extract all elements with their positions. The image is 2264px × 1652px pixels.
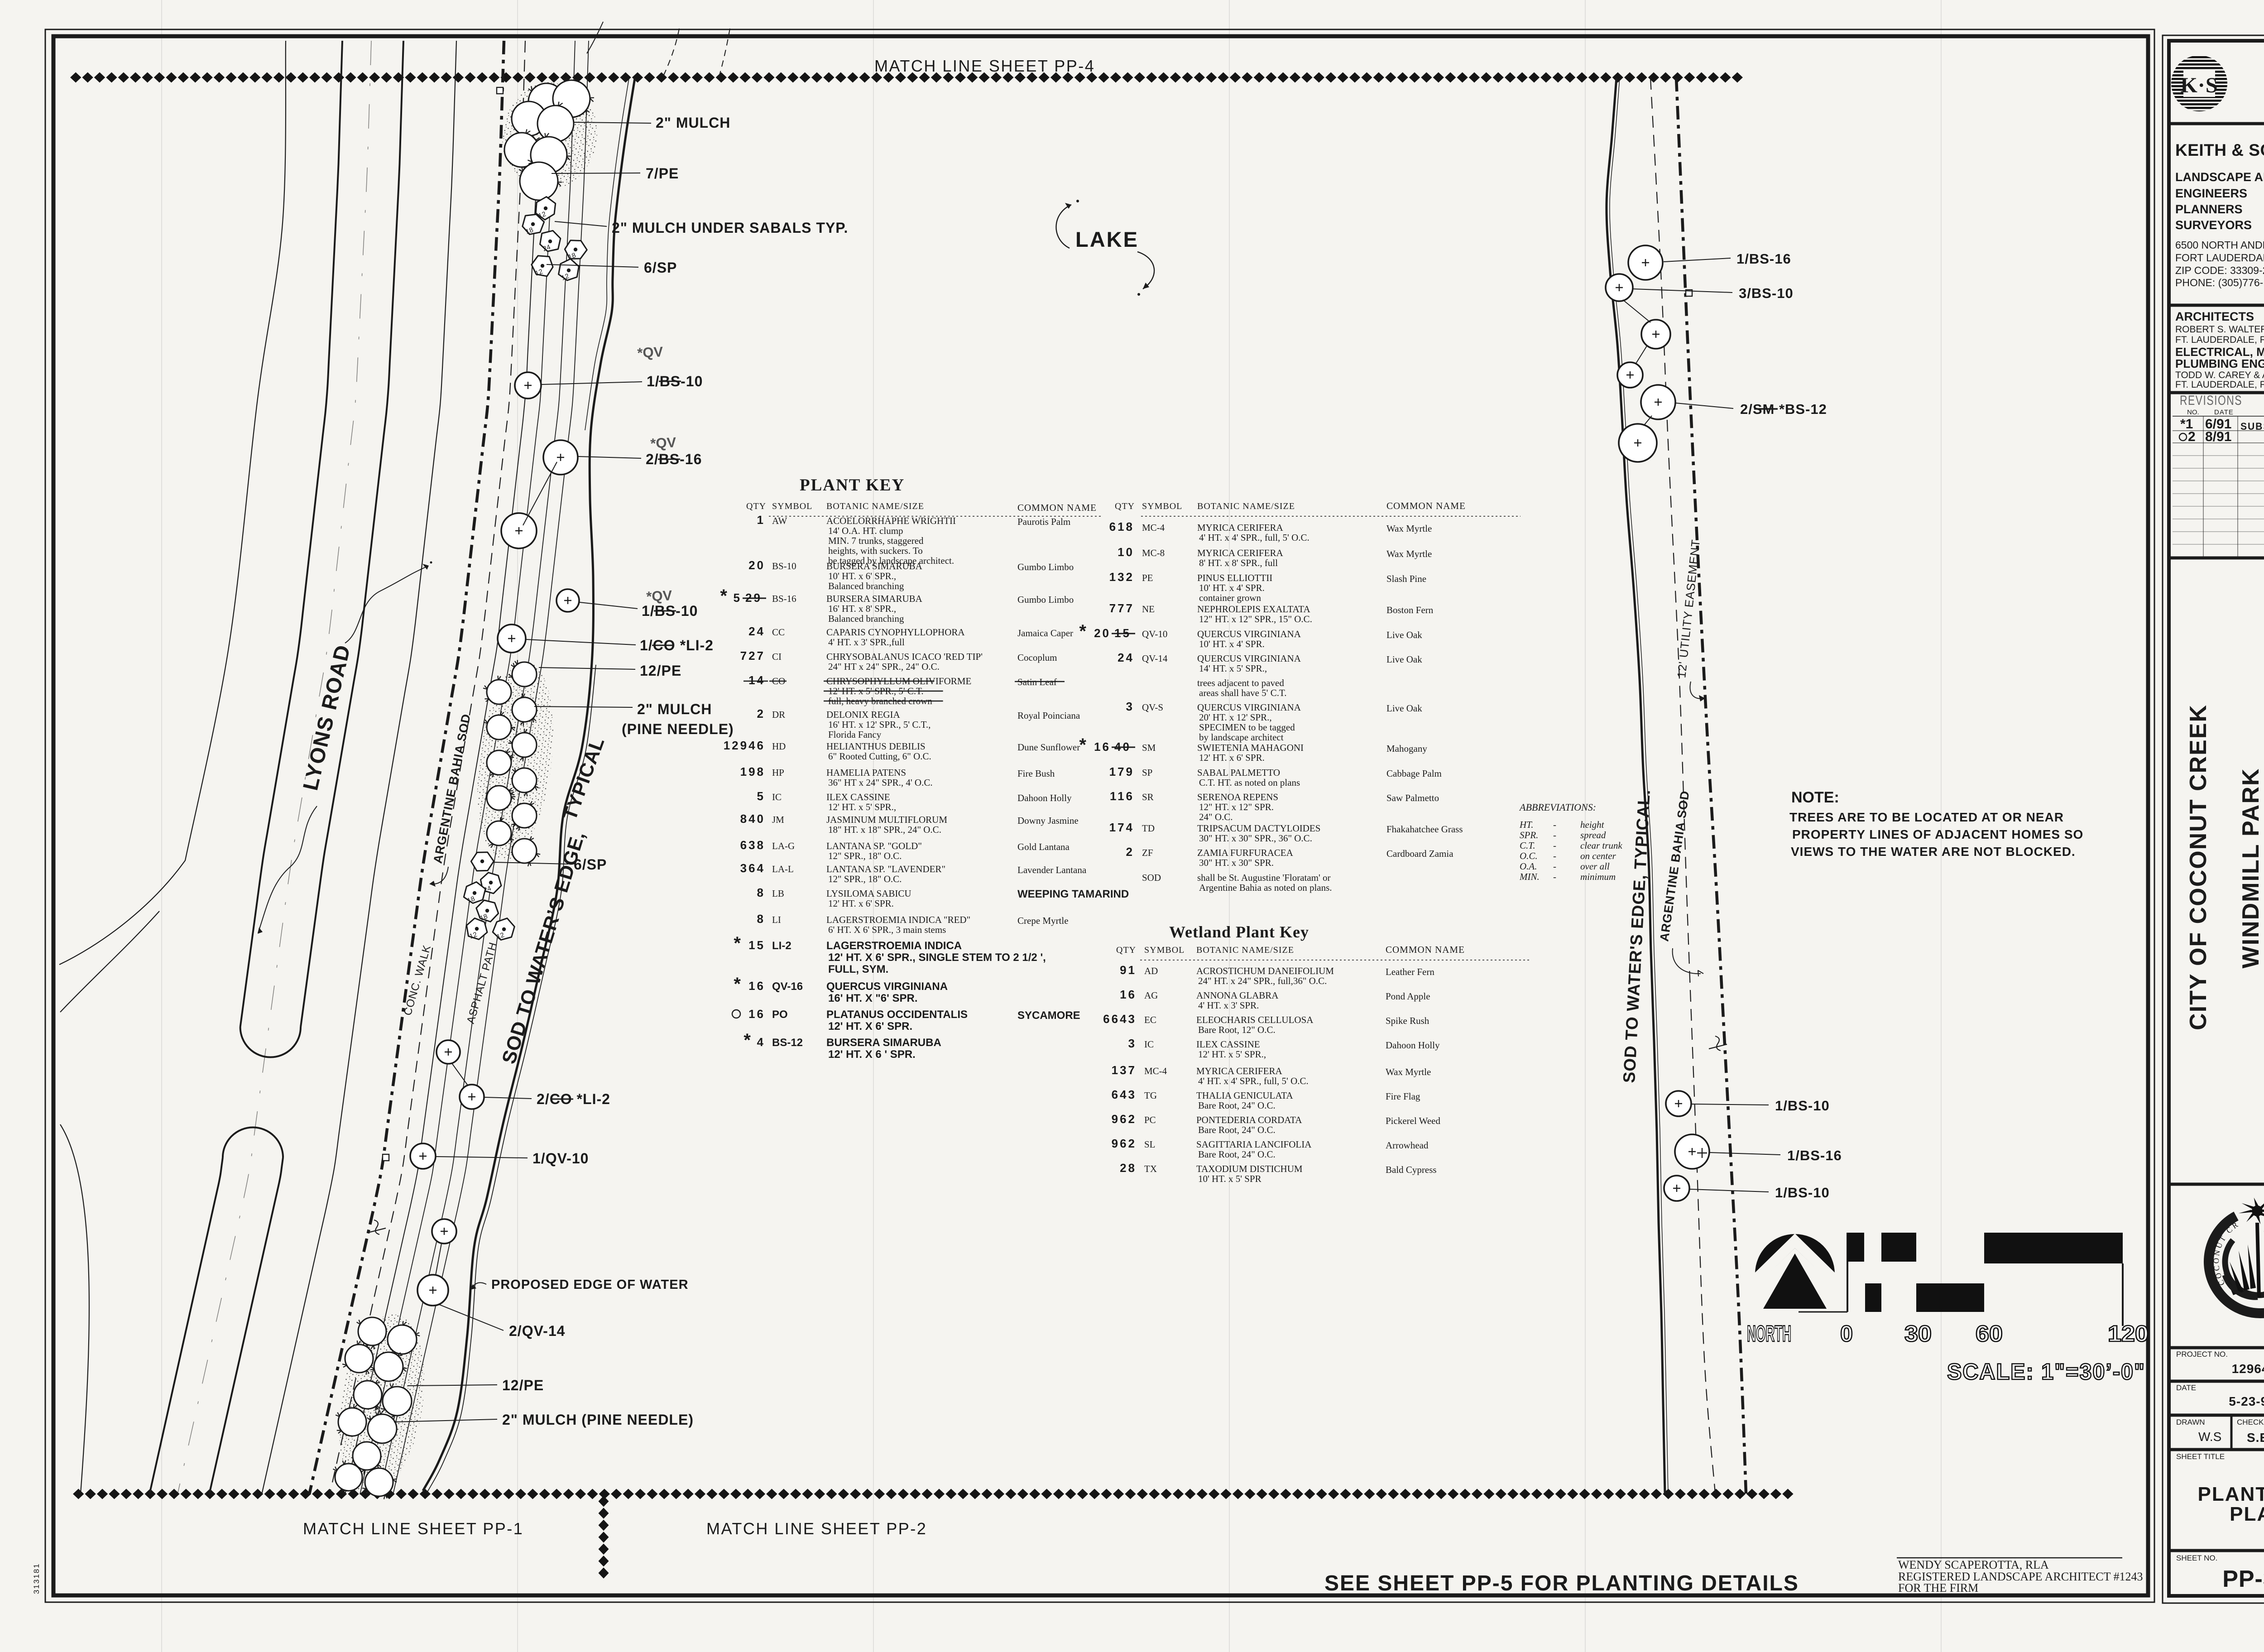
svg-text:*: * — [1079, 735, 1086, 755]
svg-text:8: 8 — [757, 912, 765, 926]
svg-text:SOD: SOD — [1142, 872, 1161, 883]
svg-text:VIEWS TO THE WATER ARE NOT BLO: VIEWS TO THE WATER ARE NOT BLOCKED. — [1791, 845, 2076, 859]
svg-text:BOTANIC NAME/SIZE: BOTANIC NAME/SIZE — [826, 501, 924, 511]
svg-text:4' HT. x 4' SPR., full, 5' O.C: 4' HT. x 4' SPR., full, 5' O.C. — [1198, 1076, 1309, 1086]
svg-text:2" MULCH: 2" MULCH — [656, 115, 730, 131]
svg-text:10' HT. x 4' SPR.: 10' HT. x 4' SPR. — [1199, 639, 1265, 649]
svg-text:174: 174 — [1109, 821, 1134, 834]
svg-text:BOTANIC NAME/SIZE: BOTANIC NAME/SIZE — [1196, 945, 1294, 955]
svg-text:24" HT. x 24" SPR., full,36" O: 24" HT. x 24" SPR., full,36" O.C. — [1198, 975, 1327, 986]
svg-text:LAGERSTROEMIA INDICA "RED": LAGERSTROEMIA INDICA "RED" — [826, 914, 970, 925]
svg-text:2" MULCH: 2" MULCH — [637, 701, 712, 717]
svg-text:WEEPING TAMARIND: WEEPING TAMARIND — [1017, 888, 1129, 900]
svg-text:Jamaica Caper: Jamaica Caper — [1017, 628, 1073, 639]
svg-text:by landscape architect: by landscape architect — [1199, 732, 1284, 743]
svg-text:CAPARIS CYNOPHYLLOPHORA: CAPARIS CYNOPHYLLOPHORA — [826, 627, 965, 638]
svg-text:3/BS-10: 3/BS-10 — [1739, 285, 1794, 301]
svg-text:BURSERA SIMARUBA: BURSERA SIMARUBA — [826, 593, 923, 604]
svg-text:24" O.C.: 24" O.C. — [1199, 812, 1233, 822]
svg-text:LA-L: LA-L — [772, 864, 794, 874]
svg-text:SEE SHEET PP-5 FOR PLANTING DE: SEE SHEET PP-5 FOR PLANTING DETAILS — [1324, 1571, 1799, 1595]
svg-text:Lavender Lantana: Lavender Lantana — [1017, 864, 1087, 875]
svg-text:PROPOSED EDGE OF WATER: PROPOSED EDGE OF WATER — [491, 1277, 689, 1292]
svg-text:FULL, SYM.: FULL, SYM. — [828, 963, 888, 975]
svg-text:20: 20 — [1094, 626, 1111, 640]
svg-text:3: 3 — [1126, 700, 1134, 713]
svg-text:DR: DR — [772, 709, 785, 720]
svg-text:16: 16 — [748, 979, 765, 993]
svg-text:KEITH & SCHNARS, P.A.: KEITH & SCHNARS, P.A. — [2175, 141, 2264, 159]
svg-text:313181: 313181 — [32, 1563, 41, 1594]
svg-text:on center: on center — [1580, 850, 1616, 861]
svg-text:91: 91 — [1120, 963, 1137, 977]
svg-text:MIN.: MIN. — [1519, 871, 1540, 882]
svg-text:DELONIX REGIA: DELONIX REGIA — [826, 709, 901, 720]
svg-text:ARGENTINE BAHIA SOD: ARGENTINE BAHIA SOD — [1657, 790, 1692, 942]
svg-text:SL: SL — [1144, 1139, 1156, 1150]
svg-text:ILEX CASSINE: ILEX CASSINE — [826, 792, 890, 802]
svg-text:Wetland Plant Key: Wetland Plant Key — [1169, 923, 1309, 941]
svg-text:MC-4: MC-4 — [1144, 1066, 1167, 1076]
svg-text:1/BS-10: 1/BS-10 — [1775, 1185, 1830, 1201]
svg-text:MATCH LINE SHEET PP-4: MATCH LINE SHEET PP-4 — [874, 57, 1095, 75]
svg-text:QUERCUS VIRGINIANA: QUERCUS VIRGINIANA — [1197, 653, 1301, 664]
svg-text:HT.: HT. — [1519, 819, 1534, 830]
svg-text:LANTANA SP. "LAVENDER": LANTANA SP. "LAVENDER" — [826, 864, 945, 874]
svg-text:ROBERT S. WALTERS, P.A.: ROBERT S. WALTERS, P.A. — [2175, 324, 2264, 335]
svg-text:PLAN: PLAN — [2230, 1503, 2264, 1525]
svg-text:2/SM *BS-12: 2/SM *BS-12 — [1740, 401, 1827, 417]
svg-text:HELIANTHUS DEBILIS: HELIANTHUS DEBILIS — [826, 741, 926, 752]
svg-text:LANDSCAPE ARCHITECTS: LANDSCAPE ARCHITECTS — [2175, 170, 2264, 184]
svg-text:TYPICAL: TYPICAL — [559, 735, 609, 823]
svg-text:Dune Sunflower: Dune Sunflower — [1017, 742, 1080, 753]
svg-text:FOR THE FIRM: FOR THE FIRM — [1898, 1581, 1978, 1594]
svg-text:Balanced branching: Balanced branching — [828, 581, 904, 591]
svg-text:12964: 12964 — [2232, 1362, 2264, 1376]
svg-text:LYSILOMA SABICU: LYSILOMA SABICU — [826, 888, 911, 899]
svg-text:COMMON NAME: COMMON NAME — [1017, 502, 1097, 513]
svg-text:PLATANUS OCCIDENTALIS: PLATANUS OCCIDENTALIS — [826, 1008, 968, 1021]
svg-text:SUBSTITUTIONS: SUBSTITUTIONS — [2240, 421, 2264, 432]
svg-text:120: 120 — [2108, 1321, 2149, 1346]
svg-text:20' HT. x 12' SPR.,: 20' HT. x 12' SPR., — [1199, 712, 1272, 723]
svg-text:1/CO *LI-2: 1/CO *LI-2 — [640, 637, 714, 653]
svg-text:PC: PC — [1144, 1114, 1156, 1125]
svg-text:14' O.A. HT. clump: 14' O.A. HT. clump — [828, 525, 903, 536]
svg-text:NO.: NO. — [2187, 408, 2199, 416]
svg-text:5-23-90: 5-23-90 — [2229, 1394, 2264, 1408]
svg-text:6643: 6643 — [1103, 1012, 1137, 1026]
svg-text:QUERCUS VIRGINIANA: QUERCUS VIRGINIANA — [826, 980, 948, 993]
svg-text:20: 20 — [748, 558, 765, 572]
svg-text:30" HT. x 30" SPR., 36" O.C.: 30" HT. x 30" SPR., 36" O.C. — [1199, 833, 1312, 844]
svg-text:ACROSTICHUM DANEIFOLIUM: ACROSTICHUM DANEIFOLIUM — [1196, 965, 1334, 976]
svg-text:SCALE: 1"=30’-0": SCALE: 1"=30’-0" — [1947, 1359, 2145, 1384]
svg-text:ZIP CODE: 33309-2132: ZIP CODE: 33309-2132 — [2175, 264, 2264, 276]
svg-text:1/BS-16: 1/BS-16 — [1787, 1148, 1842, 1163]
svg-text:MATCH LINE SHEET PP-2: MATCH LINE SHEET PP-2 — [706, 1519, 927, 1538]
svg-text:Fire Flag: Fire Flag — [1386, 1091, 1420, 1102]
svg-text:10' HT. x 6' SPR.,: 10' HT. x 6' SPR., — [828, 571, 896, 581]
svg-text:Paurotis Palm: Paurotis Palm — [1017, 516, 1070, 527]
svg-text:16: 16 — [1094, 740, 1111, 754]
svg-text:IC: IC — [1144, 1039, 1154, 1050]
svg-text:16: 16 — [1120, 988, 1137, 1001]
svg-text:container grown: container grown — [1199, 592, 1262, 603]
svg-text:TAXODIUM DISTICHUM: TAXODIUM DISTICHUM — [1196, 1163, 1303, 1174]
svg-text:SHEET NO.: SHEET NO. — [2176, 1554, 2217, 1562]
svg-text:QUERCUS VIRGINIANA: QUERCUS VIRGINIANA — [1197, 629, 1301, 639]
svg-text:28: 28 — [1120, 1161, 1137, 1175]
svg-text:198: 198 — [740, 765, 765, 778]
svg-text:ABBREVIATIONS:: ABBREVIATIONS: — [1519, 802, 1596, 813]
svg-text:ANNONA GLABRA: ANNONA GLABRA — [1196, 990, 1279, 1001]
svg-text:PLANNERS: PLANNERS — [2175, 202, 2243, 216]
svg-text:LANTANA SP. "GOLD": LANTANA SP. "GOLD" — [826, 840, 922, 851]
svg-text:shall be St. Augustine 'Florat: shall be St. Augustine 'Floratam' or — [1197, 872, 1331, 883]
svg-text:Boston Fern: Boston Fern — [1386, 605, 1434, 615]
svg-text:MYRICA CERIFERA: MYRICA CERIFERA — [1196, 1066, 1282, 1076]
svg-text:SERENOA REPENS: SERENOA REPENS — [1197, 792, 1278, 802]
svg-text:638: 638 — [740, 838, 765, 852]
svg-text:PLANTING: PLANTING — [2198, 1483, 2264, 1505]
svg-text:Florida Fancy: Florida Fancy — [828, 729, 882, 740]
svg-text:S.E.T.: S.E.T. — [2247, 1431, 2264, 1445]
svg-text:8: 8 — [757, 886, 765, 899]
svg-text:Arrowhead: Arrowhead — [1386, 1140, 1429, 1151]
svg-text:Royal Poinciana: Royal Poinciana — [1017, 710, 1080, 721]
svg-text:BOTANIC NAME/SIZE: BOTANIC NAME/SIZE — [1197, 501, 1295, 511]
svg-text:clear trunk: clear trunk — [1580, 840, 1622, 851]
svg-text:Dahoon Holly: Dahoon Holly — [1386, 1040, 1440, 1051]
svg-text:-: - — [1553, 871, 1556, 882]
svg-text:16' HT. X "6' SPR.: 16' HT. X "6' SPR. — [828, 992, 918, 1004]
svg-text:12" SPR., 18" O.C.: 12" SPR., 18" O.C. — [828, 850, 902, 861]
svg-text:Cabbage Palm: Cabbage Palm — [1386, 768, 1442, 779]
svg-text:179: 179 — [1109, 765, 1134, 778]
svg-text:TG: TG — [1144, 1090, 1157, 1101]
svg-text:12" HT. x 12" SPR., 15" O.C.: 12" HT. x 12" SPR., 15" O.C. — [1199, 614, 1312, 624]
svg-text:*QV: *QV — [637, 344, 664, 361]
svg-text:PINUS ELLIOTTII: PINUS ELLIOTTII — [1197, 572, 1272, 583]
svg-text:Bare Root, 24" O.C.: Bare Root, 24" O.C. — [1198, 1149, 1276, 1160]
svg-text:364: 364 — [740, 861, 765, 875]
svg-text:SYMBOL: SYMBOL — [1144, 945, 1185, 955]
svg-text:*QV: *QV — [646, 587, 673, 605]
svg-text:Fire Bush: Fire Bush — [1017, 768, 1055, 779]
svg-text:HD: HD — [772, 741, 786, 752]
svg-text:Bare Root, 12" O.C.: Bare Root, 12" O.C. — [1198, 1024, 1276, 1035]
svg-text:Fhakahatchee Grass: Fhakahatchee Grass — [1386, 824, 1463, 835]
svg-text:Leather Fern: Leather Fern — [1386, 966, 1434, 977]
svg-text:1/BS-16: 1/BS-16 — [1736, 251, 1791, 267]
svg-text:ELEOCHARIS CELLULOSA: ELEOCHARIS CELLULOSA — [1196, 1014, 1314, 1025]
svg-text:BS-12: BS-12 — [772, 1037, 803, 1049]
svg-text:Mahogany: Mahogany — [1386, 743, 1427, 754]
svg-text:PROPERTY LINES OF ADJACENT HOM: PROPERTY LINES OF ADJACENT HOMES SO — [1792, 827, 2083, 841]
svg-text:4' HT. x 4' SPR., full, 5' O.C: 4' HT. x 4' SPR., full, 5' O.C. — [1199, 532, 1309, 543]
svg-text:137: 137 — [1112, 1063, 1137, 1077]
svg-text:Wax Myrtle: Wax Myrtle — [1386, 523, 1432, 534]
svg-text:Saw Palmetto: Saw Palmetto — [1386, 792, 1439, 803]
svg-text:3: 3 — [1128, 1037, 1137, 1050]
svg-text:QV-10: QV-10 — [1142, 629, 1167, 639]
svg-text:SURVEYORS: SURVEYORS — [2175, 218, 2252, 232]
svg-text:Crepe Myrtle: Crepe Myrtle — [1017, 915, 1069, 926]
svg-text:QV-14: QV-14 — [1142, 653, 1168, 664]
svg-text:BURSERA SIMARUBA: BURSERA SIMARUBA — [826, 1037, 941, 1049]
svg-text:PE: PE — [1142, 572, 1153, 583]
svg-text:SR: SR — [1142, 792, 1154, 802]
svg-text:10' HT. x 4' SPR.: 10' HT. x 4' SPR. — [1199, 582, 1265, 593]
svg-text:ACOELORRHAPHE WRIGHTII: ACOELORRHAPHE WRIGHTII — [826, 515, 956, 526]
svg-text:over all: over all — [1580, 861, 1610, 872]
svg-text:8' HT. x 8' SPR., full: 8' HT. x 8' SPR., full — [1199, 557, 1278, 568]
svg-text:AW: AW — [772, 515, 787, 526]
svg-text:2: 2 — [1126, 845, 1134, 859]
svg-text:WINDMILL PARK: WINDMILL PARK — [2238, 768, 2264, 969]
svg-text:4' HT. x 3' SPR.: 4' HT. x 3' SPR. — [1198, 1000, 1259, 1011]
svg-text:FT. LAUDERDALE, FLORIDA: FT. LAUDERDALE, FLORIDA — [2175, 335, 2264, 345]
svg-text:Cardboard Zamia: Cardboard Zamia — [1386, 848, 1453, 859]
svg-text:6/SP: 6/SP — [574, 856, 607, 873]
svg-text:CI: CI — [772, 651, 782, 662]
svg-text:LAGERSTROEMIA INDICA: LAGERSTROEMIA INDICA — [826, 940, 962, 952]
svg-text:SPECIMEN to be tagged: SPECIMEN to be tagged — [1199, 722, 1295, 733]
svg-text:2" MULCH UNDER SABALS TYP.: 2" MULCH UNDER SABALS TYP. — [612, 220, 848, 236]
svg-text:Live Oak: Live Oak — [1386, 703, 1422, 714]
svg-text:TX: TX — [1144, 1163, 1157, 1174]
svg-text:areas shall have 5' C.T.: areas shall have 5' C.T. — [1199, 687, 1287, 698]
svg-text:2: 2 — [2188, 429, 2196, 444]
svg-text:heights, with suckers. To: heights, with suckers. To — [828, 545, 923, 556]
svg-text:C.T.: C.T. — [1520, 840, 1535, 851]
svg-text:5: 5 — [734, 591, 742, 605]
svg-text:60: 60 — [1976, 1321, 2003, 1346]
svg-text:HP: HP — [772, 767, 784, 778]
svg-text:PLANT KEY: PLANT KEY — [800, 476, 905, 495]
svg-text:TRIPSACUM DACTYLOIDES: TRIPSACUM DACTYLOIDES — [1197, 823, 1320, 834]
svg-text:ENGINEERS: ENGINEERS — [2175, 187, 2247, 200]
svg-text:LI-2: LI-2 — [772, 940, 791, 952]
svg-text:Bare Root, 24" O.C.: Bare Root, 24" O.C. — [1198, 1124, 1276, 1135]
svg-text:DATE: DATE — [2214, 408, 2234, 416]
svg-text:Cocoplum: Cocoplum — [1017, 652, 1057, 663]
svg-text:SAGITTARIA LANCIFOLIA: SAGITTARIA LANCIFOLIA — [1196, 1139, 1312, 1150]
svg-text:QTY: QTY — [1116, 945, 1136, 955]
svg-text:K·S: K·S — [2180, 73, 2218, 97]
svg-text:SYMBOL: SYMBOL — [772, 501, 812, 511]
svg-text:LA-G: LA-G — [772, 840, 795, 851]
svg-text:LAKE: LAKE — [1075, 227, 1139, 251]
svg-text:MATCH LINE SHEET PP-1: MATCH LINE SHEET PP-1 — [303, 1519, 523, 1538]
svg-text:SABAL PALMETTO: SABAL PALMETTO — [1197, 767, 1280, 778]
svg-text:12' HT. x 5' SPR.,: 12' HT. x 5' SPR., — [1198, 1049, 1266, 1060]
svg-text:O.C.: O.C. — [1520, 850, 1538, 861]
svg-text:Gumbo Limbo: Gumbo Limbo — [1017, 562, 1074, 572]
svg-text:BS-16: BS-16 — [772, 593, 796, 604]
svg-text:2: 2 — [757, 707, 765, 720]
svg-text:840: 840 — [740, 812, 765, 826]
svg-text:4' HT. x 3' SPR.,full: 4' HT. x 3' SPR.,full — [828, 637, 905, 648]
svg-text:12' HT. x 6' SPR.: 12' HT. x 6' SPR. — [828, 898, 894, 909]
svg-text:CC: CC — [772, 627, 785, 638]
svg-text:MYRICA CERIFERA: MYRICA CERIFERA — [1197, 547, 1283, 558]
svg-text:PLUMBING ENGINEER: PLUMBING ENGINEER — [2175, 357, 2264, 370]
svg-text:12' HT. X 6 ' SPR.: 12' HT. X 6 ' SPR. — [828, 1048, 916, 1061]
svg-text:12" SPR., 18" O.C.: 12" SPR., 18" O.C. — [828, 874, 902, 884]
svg-text:Bald Cypress: Bald Cypress — [1386, 1164, 1437, 1175]
svg-text:6500 NORTH ANDREWS AVENUE: 6500 NORTH ANDREWS AVENUE — [2175, 239, 2264, 251]
svg-text:36" HT x 24" SPR., 4' O.C.: 36" HT x 24" SPR., 4' O.C. — [828, 777, 933, 788]
svg-text:SHEET TITLE: SHEET TITLE — [2176, 1452, 2225, 1461]
svg-text:ARCHITECTS: ARCHITECTS — [2175, 310, 2254, 323]
svg-text:0: 0 — [1840, 1321, 1853, 1346]
svg-text:24: 24 — [748, 624, 765, 638]
svg-text:Pickerel Weed: Pickerel Weed — [1386, 1115, 1440, 1126]
svg-text:16' HT. x 8' SPR.,: 16' HT. x 8' SPR., — [828, 603, 896, 614]
svg-text:SWIETENIA MAHAGONI: SWIETENIA MAHAGONI — [1197, 742, 1304, 753]
svg-text:1/BS-10: 1/BS-10 — [1775, 1098, 1830, 1114]
svg-text:10' HT. x 5' SPR: 10' HT. x 5' SPR — [1198, 1173, 1262, 1184]
svg-text:W.S: W.S — [2198, 1430, 2221, 1444]
svg-text:FT. LAUDERDALE, FLORIDA: FT. LAUDERDALE, FLORIDA — [2175, 379, 2264, 390]
svg-text:2/QV-14: 2/QV-14 — [509, 1323, 565, 1339]
svg-text:727: 727 — [740, 649, 765, 663]
svg-text:12' HT. x 5' SPR.,: 12' HT. x 5' SPR., — [828, 802, 896, 812]
svg-text:SYCAMORE: SYCAMORE — [1017, 1009, 1080, 1022]
svg-text:Gold Lantana: Gold Lantana — [1017, 841, 1070, 852]
svg-text:QUERCUS VIRGINIANA: QUERCUS VIRGINIANA — [1197, 702, 1301, 713]
svg-text:AG: AG — [1144, 990, 1158, 1001]
svg-text:minimum: minimum — [1580, 871, 1616, 882]
svg-text:8/91: 8/91 — [2205, 429, 2231, 444]
svg-text:30" HT. x 30" SPR.: 30" HT. x 30" SPR. — [1199, 857, 1274, 868]
svg-text:QV-16: QV-16 — [772, 980, 803, 993]
svg-text:LI: LI — [772, 914, 781, 925]
svg-text:C.T. HT. as noted on plans: C.T. HT. as noted on plans — [1199, 777, 1300, 788]
svg-text:NORTH: NORTH — [1747, 1321, 1791, 1346]
svg-text:2" MULCH (PINE NEEDLE): 2" MULCH (PINE NEEDLE) — [502, 1412, 694, 1428]
svg-text:*: * — [720, 586, 727, 606]
svg-text:WENDY SCAPEROTTA, RLA: WENDY SCAPEROTTA, RLA — [1898, 1558, 2049, 1571]
svg-text:2/CO *LI-2: 2/CO *LI-2 — [537, 1091, 610, 1107]
svg-text:5: 5 — [757, 789, 765, 803]
svg-text:*: * — [734, 974, 741, 994]
svg-text:Spike Rush: Spike Rush — [1386, 1015, 1429, 1026]
svg-text:-: - — [1553, 861, 1556, 872]
svg-text:FORT LAUDERDALE, FLORIDA: FORT LAUDERDALE, FLORIDA — [2175, 252, 2264, 264]
svg-text:LYONS ROAD: LYONS ROAD — [298, 642, 355, 793]
svg-text:12' UTILITY EASEMENT: 12' UTILITY EASEMENT — [1674, 538, 1703, 678]
svg-text:BURSERA SIMARUBA: BURSERA SIMARUBA — [826, 561, 923, 571]
svg-text:DATE: DATE — [2176, 1383, 2196, 1392]
svg-text:(PINE NEEDLE): (PINE NEEDLE) — [622, 721, 734, 737]
svg-text:JASMINUM MULTIFLORUM: JASMINUM MULTIFLORUM — [826, 814, 947, 825]
svg-text:MYRICA CERIFERA: MYRICA CERIFERA — [1197, 522, 1283, 533]
svg-text:14: 14 — [748, 673, 765, 687]
svg-text:Live Oak: Live Oak — [1386, 654, 1422, 665]
svg-text:777: 777 — [1109, 601, 1134, 615]
svg-text:12' HT. x 6' SPR.: 12' HT. x 6' SPR. — [1199, 752, 1265, 763]
svg-text:ILEX CASSINE: ILEX CASSINE — [1196, 1039, 1260, 1050]
svg-text:TREES ARE TO BE LOCATED AT OR: TREES ARE TO BE LOCATED AT OR NEAR — [1789, 810, 2064, 824]
svg-text:-: - — [1553, 830, 1556, 840]
svg-text:16: 16 — [748, 1007, 765, 1021]
svg-text:REVISIONS: REVISIONS — [2180, 393, 2242, 408]
svg-text:DRAWN: DRAWN — [2176, 1418, 2205, 1426]
svg-text:6' HT. X 6' SPR., 3 main stems: 6' HT. X 6' SPR., 3 main stems — [828, 924, 946, 935]
svg-text:962: 962 — [1112, 1112, 1137, 1126]
svg-text:SM: SM — [1142, 742, 1156, 753]
svg-text:Gumbo Limbo: Gumbo Limbo — [1017, 594, 1074, 605]
svg-text:24" HT x 24" SPR., 24" O.C.: 24" HT x 24" SPR., 24" O.C. — [828, 661, 940, 672]
svg-text:Bare Root, 24" O.C.: Bare Root, 24" O.C. — [1198, 1100, 1276, 1111]
svg-text:*: * — [743, 1030, 751, 1050]
svg-text:SP: SP — [1142, 767, 1152, 778]
svg-text:LB: LB — [772, 888, 784, 899]
svg-text:COMMON NAME: COMMON NAME — [1386, 500, 1466, 511]
svg-text:116: 116 — [1110, 789, 1134, 803]
svg-text:7/PE: 7/PE — [646, 165, 679, 182]
svg-text:COMMON NAME: COMMON NAME — [1386, 944, 1465, 955]
svg-text:TD: TD — [1142, 823, 1155, 834]
svg-text:12/PE: 12/PE — [502, 1377, 544, 1393]
svg-text:PP-3: PP-3 — [2222, 1566, 2264, 1592]
svg-text:JM: JM — [772, 814, 784, 825]
svg-text:MIN. 7 trunks, staggered: MIN. 7 trunks, staggered — [828, 535, 924, 546]
svg-text:Wax Myrtle: Wax Myrtle — [1386, 1066, 1431, 1077]
svg-text:*: * — [1079, 621, 1086, 641]
svg-text:CHECKED: CHECKED — [2237, 1418, 2264, 1426]
svg-text:6" Rooted Cutting, 6" O.C.: 6" Rooted Cutting, 6" O.C. — [828, 751, 931, 762]
svg-text:*: * — [734, 933, 741, 953]
svg-text:PROJECT NO.: PROJECT NO. — [2176, 1350, 2228, 1359]
svg-text:-: - — [1553, 819, 1556, 830]
svg-text:SOD TO WATER'S EDGE, TYPICAL.: SOD TO WATER'S EDGE, TYPICAL. — [1620, 789, 1654, 1083]
svg-text:TODD W. CAREY & ASSOC., INC: TODD W. CAREY & ASSOC., INC. — [2175, 370, 2264, 380]
svg-text:Argentine Bahia as noted on pl: Argentine Bahia as noted on plans. — [1199, 882, 1332, 893]
svg-text:EC: EC — [1144, 1014, 1156, 1025]
svg-text:132: 132 — [1109, 570, 1134, 584]
svg-text:height: height — [1580, 819, 1605, 830]
svg-text:HAMELIA PATENS: HAMELIA PATENS — [826, 767, 906, 778]
svg-text:6/SP: 6/SP — [644, 259, 677, 276]
svg-text:16' HT. x 12' SPR., 5' C.T.,: 16' HT. x 12' SPR., 5' C.T., — [828, 719, 931, 730]
svg-text:SYMBOL: SYMBOL — [1142, 501, 1182, 511]
svg-text:24: 24 — [1118, 651, 1134, 664]
svg-text:QTY: QTY — [1115, 501, 1135, 511]
svg-text:NEPHROLEPIS EXALTATA: NEPHROLEPIS EXALTATA — [1197, 604, 1310, 615]
svg-text:Pond Apple: Pond Apple — [1386, 991, 1430, 1002]
svg-text:PONTEDERIA CORDATA: PONTEDERIA CORDATA — [1196, 1114, 1302, 1125]
svg-text:-: - — [1553, 850, 1556, 861]
svg-text:15: 15 — [748, 938, 765, 952]
svg-text:SPR.: SPR. — [1520, 830, 1538, 840]
svg-text:4: 4 — [757, 1035, 765, 1049]
svg-text:12946: 12946 — [724, 739, 765, 752]
svg-text:14' HT. x 5' SPR.,: 14' HT. x 5' SPR., — [1199, 663, 1267, 674]
svg-text:643: 643 — [1112, 1088, 1137, 1101]
svg-text:Slash Pine: Slash Pine — [1386, 573, 1426, 584]
svg-text:962: 962 — [1112, 1137, 1137, 1150]
svg-text:18" HT. x 18" SPR., 24" O.C.: 18" HT. x 18" SPR., 24" O.C. — [828, 824, 941, 835]
svg-text:IC: IC — [772, 792, 782, 802]
svg-text:AD: AD — [1144, 965, 1158, 976]
svg-text:618: 618 — [1109, 520, 1134, 533]
svg-text:Wax Myrtle: Wax Myrtle — [1386, 548, 1432, 559]
